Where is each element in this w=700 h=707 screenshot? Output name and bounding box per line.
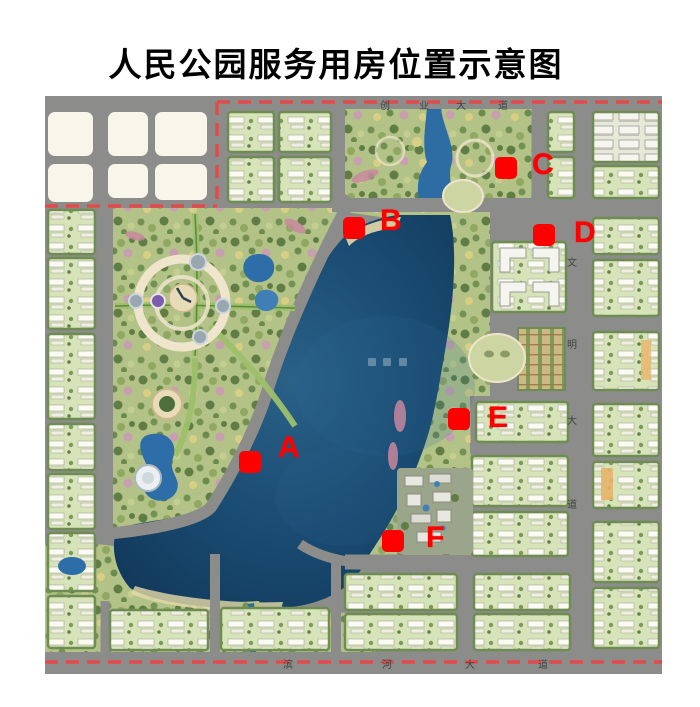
top-road-char: 创 [380,99,390,112]
marker-square-C [495,157,517,179]
right-road-char: 明 [567,339,577,351]
right-road-char: 道 [567,498,577,511]
bottom-road-char: 道 [538,658,548,671]
bottom-road-char: 大 [465,658,475,671]
map-rendering: 创业大道文明大道滨河大道 [45,96,662,674]
right-road-char: 文 [567,256,577,269]
marker-letter-B: B [380,206,402,236]
page-title: 人民公园服务用房位置示意图 [0,38,672,86]
lake-label-marks [368,358,407,366]
marker-square-E [448,408,470,430]
marker-letter-E: E [488,403,508,433]
orange-accent-1 [601,468,613,500]
river-island [412,137,422,147]
orange-accent-2 [641,340,651,380]
right-road-char: 大 [567,414,577,427]
bottom-road-char: 河 [382,659,392,671]
marker-square-B [343,217,365,239]
marker-letter-F: F [426,523,444,553]
river-island-2 [408,145,414,151]
marker-letter-D: D [574,218,596,248]
lake-highlight [295,316,475,456]
west-pond [58,557,86,575]
industrial-block [593,112,659,162]
marker-square-F [382,530,404,552]
top-road-char: 道 [498,99,508,112]
top-road-char: 业 [419,100,429,112]
bottom-road-char: 滨 [283,658,293,671]
page: { "title": "人民公园服务用房位置示意图", "map": { "de… [0,0,700,707]
marker-letter-C: C [532,150,554,180]
marker-letter-A: A [278,433,300,463]
top-road-char: 大 [456,99,466,112]
marker-square-D [533,224,555,246]
marker-square-A [239,451,261,473]
park-map-image: 创业大道文明大道滨河大道 ABCDEF [45,96,662,674]
